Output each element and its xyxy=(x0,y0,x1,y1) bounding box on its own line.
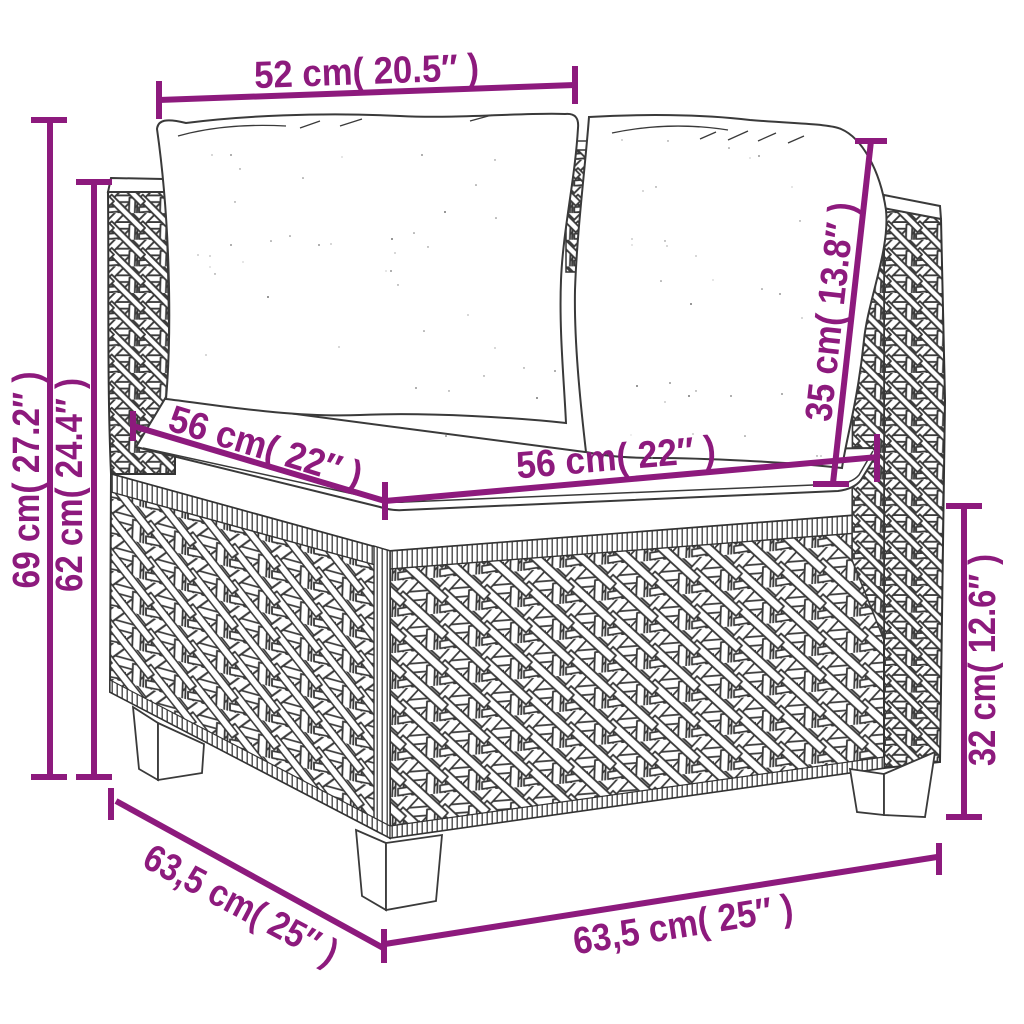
svg-text:62 cm( 24.4″ ): 62 cm( 24.4″ ) xyxy=(49,378,91,592)
svg-text:69 cm( 27.2″ ): 69 cm( 27.2″ ) xyxy=(6,372,48,589)
svg-text:32 cm( 12.6″ ): 32 cm( 12.6″ ) xyxy=(962,554,1004,766)
svg-text:52 cm( 20.5″ ): 52 cm( 20.5″ ) xyxy=(253,47,479,97)
